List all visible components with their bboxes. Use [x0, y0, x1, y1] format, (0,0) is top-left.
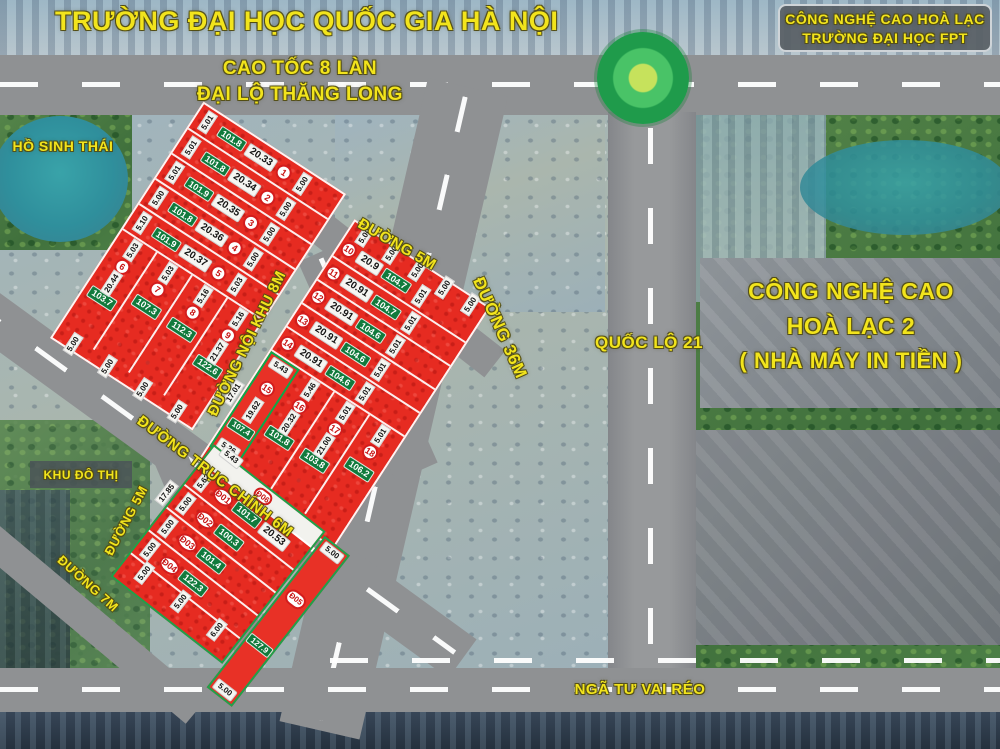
expressway-label-2: ĐẠI LỘ THĂNG LONG [150, 84, 450, 106]
plot15-right-measure: 19.62 [241, 396, 265, 424]
hitech-label-line2: HOÀ LẠC 2 [726, 313, 976, 340]
area-label: 101.8 [166, 201, 199, 228]
side-measure: 5.16 [193, 284, 214, 308]
fpt-info-box: CÔNG NGHỆ CAO HOÀ LẠC TRƯỜNG ĐẠI HỌC FPT [778, 4, 992, 52]
area-label: 101.9 [183, 175, 216, 202]
plot-d05-area-label: 127.9 [245, 632, 274, 658]
road-ql21-label: QUỐC LỘ 21 [590, 333, 708, 353]
area-label: 101.8 [215, 125, 248, 152]
side-measure: 5.01 [335, 401, 356, 425]
side-measure: 5.01 [370, 424, 391, 448]
plot-number-badge: 5 [207, 262, 229, 284]
side-measure: 5.01 [180, 136, 201, 160]
plot-number-badge: 2 [256, 187, 278, 209]
urban-area-label: KHU ĐÔ THỊ [44, 468, 119, 482]
side-measure: 5.01 [164, 161, 185, 185]
ql21-center-line [648, 128, 653, 663]
plot-number-badge: 1 [273, 162, 295, 184]
area-label: 101.8 [199, 150, 232, 177]
hitech-label-line1: CÔNG NGHỆ CAO [726, 278, 976, 305]
hitech-park-label-group: CÔNG NGHỆ CAO HOÀ LẠC 2 ( NHÀ MÁY IN TIỀ… [726, 278, 976, 374]
edge-measure: 5.00 [133, 562, 155, 586]
side-measure: 5.00 [242, 248, 263, 272]
side-measure: 5.00 [275, 198, 296, 222]
side-measure: 5.01 [400, 311, 421, 335]
side-measure: 5.00 [292, 172, 313, 196]
width-label: 20.9 [354, 250, 385, 277]
depth-measure: 21.00 [312, 432, 336, 460]
side-measure: 5.01 [197, 111, 218, 135]
intersection-label: NGÃ TƯ VAI RÉO [572, 681, 708, 698]
side-measure: 5.00 [157, 515, 179, 539]
depth-measure: 20.44 [100, 270, 124, 298]
expressway-label-1: CAO TỐC 8 LÀN [170, 58, 430, 80]
real-estate-aerial-map: 5.01101.820.3315.005.01101.820.3425.005.… [0, 0, 1000, 749]
side-measure: 5.01 [354, 382, 375, 406]
lake-topright [800, 140, 1000, 235]
side-measure: 5.00 [259, 223, 280, 247]
edge-measure: 6.00 [206, 618, 228, 642]
lake-label: HỒ SINH THÁI [6, 138, 120, 154]
depth-measure: 21.37 [205, 338, 229, 366]
side-measure: 5.00 [139, 538, 161, 562]
side-measure: 5.01 [369, 358, 390, 382]
depth-measure: 20.32 [277, 409, 301, 437]
plot-number-badge: 3 [240, 212, 262, 234]
side-measure: 5.03 [122, 239, 143, 263]
area-label: 101.9 [150, 226, 183, 253]
side-measure: 5.46 [300, 378, 321, 402]
side-measure: 5.03 [226, 273, 247, 297]
plot-number-badge: 4 [224, 237, 246, 259]
fpt-box-line2: TRƯỜNG ĐẠI HỌC FPT [802, 30, 968, 46]
intersection-center-line [0, 687, 1000, 692]
plot15-number-badge: 15 [256, 378, 278, 400]
city-skyline-bottom [0, 708, 1000, 749]
fpt-box-line1: CÔNG NGHỆ CAO HOÀ LẠC [785, 11, 985, 27]
side-measure: 5.01 [384, 335, 405, 359]
urban-area-band: KHU ĐÔ THỊ [30, 461, 132, 488]
factory-building [690, 430, 1000, 645]
intersection-upper-line [330, 658, 1000, 663]
plot-d05-number-badge: Đ05 [282, 586, 309, 612]
side-measure: 5.00 [175, 492, 197, 516]
side-measure: 5.01 [410, 285, 431, 309]
edge-measure: 5.00 [169, 590, 191, 614]
side-measure: 5.00 [148, 186, 169, 210]
side-measure: 5.10 [131, 211, 152, 235]
map-title: TRƯỜNG ĐẠI HỌC QUỐC GIA HÀ NỘI [55, 6, 495, 37]
side-measure: 5.03 [158, 261, 179, 285]
roundabout [597, 32, 689, 124]
hitech-label-line3: ( NHÀ MÁY IN TIỀN ) [726, 348, 976, 374]
